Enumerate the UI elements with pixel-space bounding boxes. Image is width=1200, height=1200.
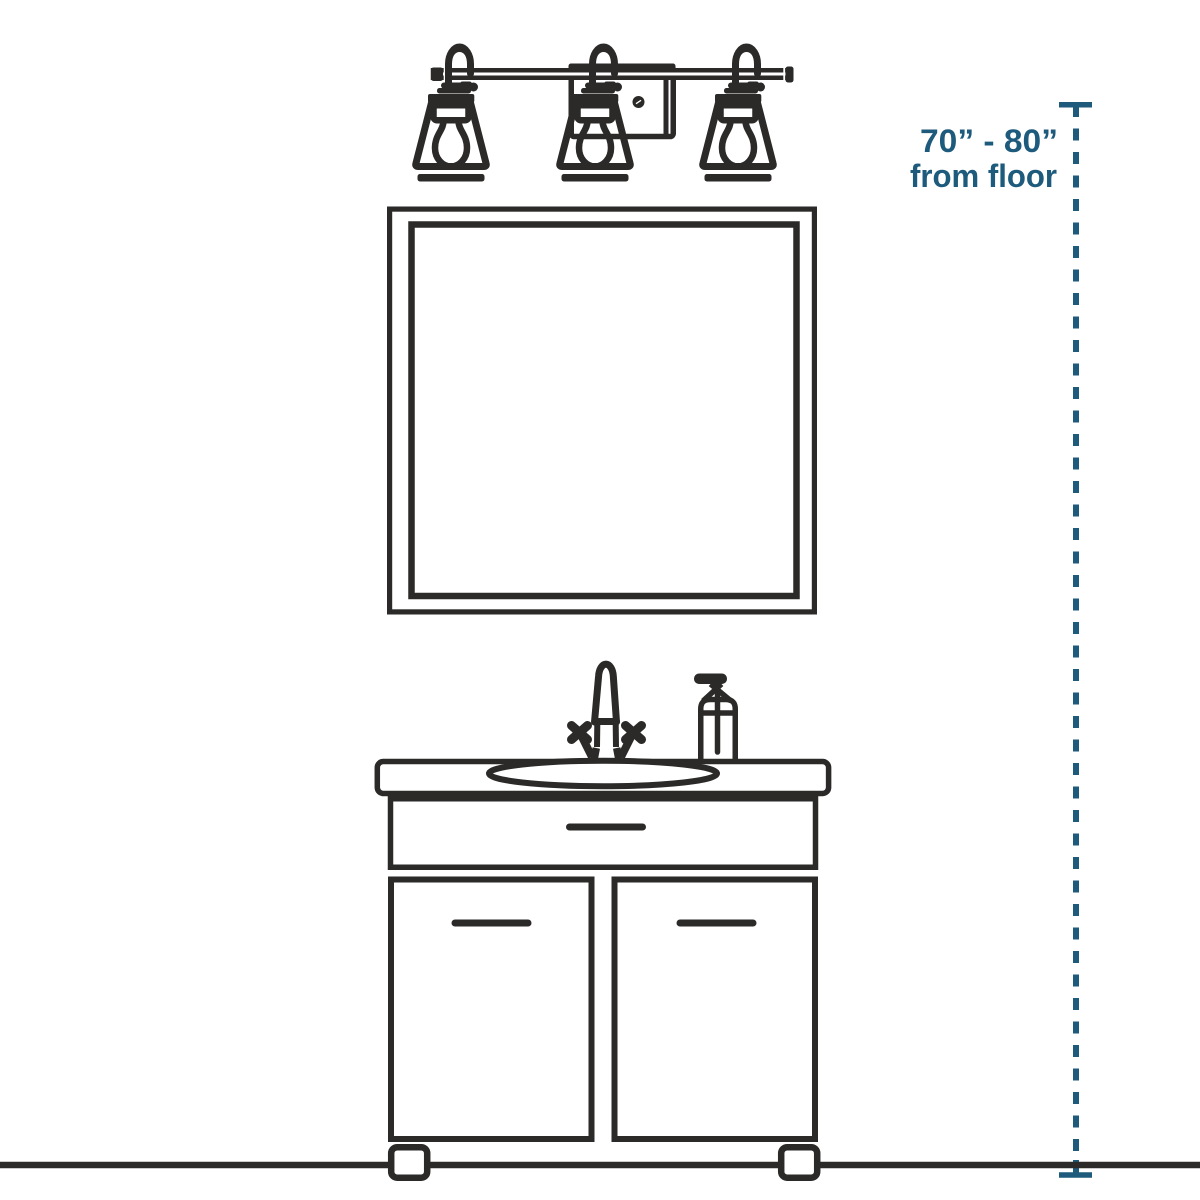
svg-text:from floor: from floor [910, 158, 1057, 194]
svg-text:70” - 80”: 70” - 80” [920, 123, 1058, 159]
